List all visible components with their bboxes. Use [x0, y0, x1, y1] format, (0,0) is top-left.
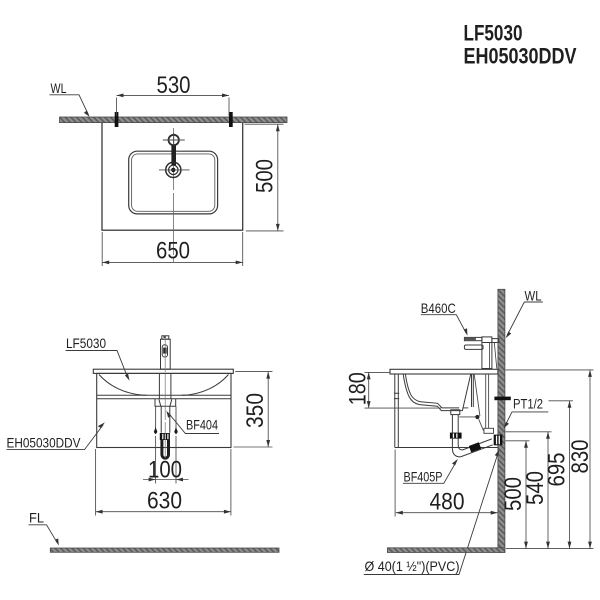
svg-text:530: 530 [157, 72, 191, 99]
svg-text:180: 180 [344, 372, 371, 405]
svg-text:350: 350 [242, 393, 269, 428]
svg-text:FL: FL [29, 509, 44, 525]
svg-text:EH05030DDV: EH05030DDV [464, 43, 577, 68]
svg-text:100: 100 [148, 457, 182, 484]
svg-text:650: 650 [156, 238, 190, 265]
svg-text:B460C: B460C [421, 300, 456, 316]
svg-text:WL: WL [525, 287, 542, 303]
svg-text:480: 480 [430, 489, 465, 516]
svg-text:PT1/2: PT1/2 [513, 396, 543, 412]
svg-text:BF405P: BF405P [404, 468, 443, 484]
svg-text:Ø 40(1 ½")(PVC): Ø 40(1 ½")(PVC) [365, 558, 460, 574]
svg-text:BF404: BF404 [186, 417, 218, 433]
svg-text:LF5030: LF5030 [464, 21, 523, 46]
svg-text:EH05030DDV: EH05030DDV [7, 434, 82, 450]
svg-text:830: 830 [567, 440, 594, 474]
svg-text:500: 500 [252, 159, 279, 193]
svg-text:WL: WL [51, 80, 67, 96]
svg-text:LF5030: LF5030 [66, 335, 106, 351]
svg-text:630: 630 [147, 488, 182, 515]
